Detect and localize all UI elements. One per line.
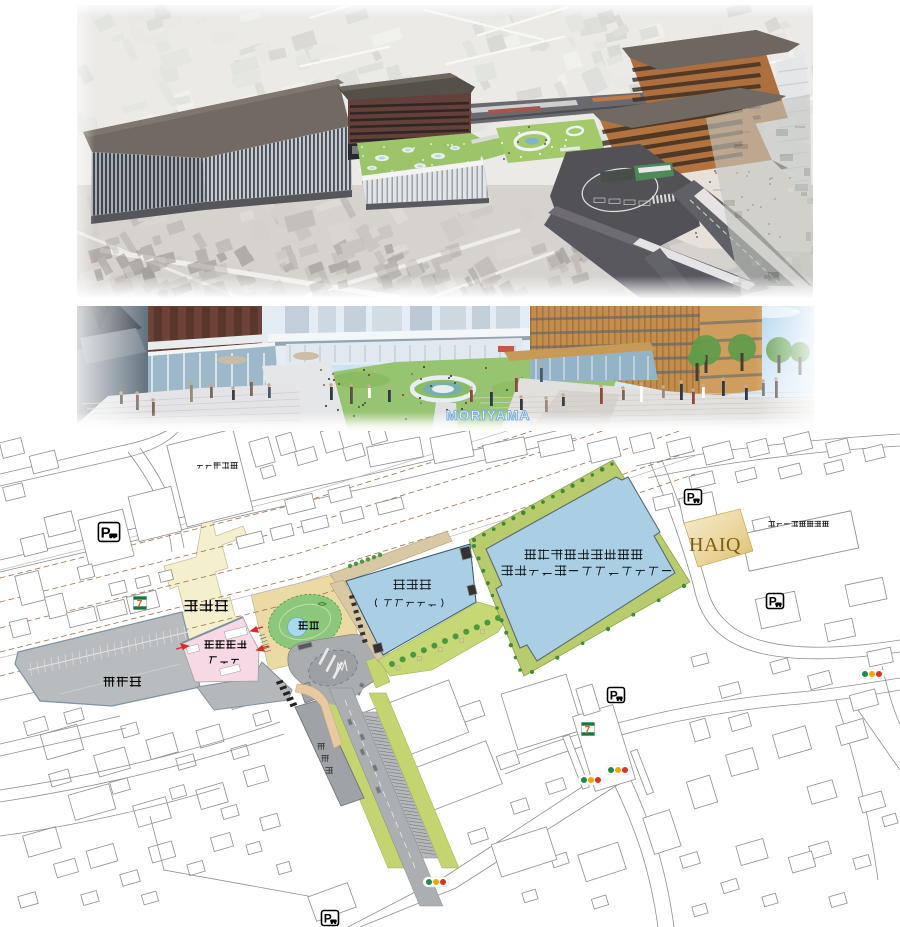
svg-text:P: P (324, 912, 332, 926)
svg-text:7: 7 (585, 725, 591, 736)
svg-text:P: P (101, 525, 111, 542)
svg-text:P: P (610, 689, 618, 703)
svg-text:P: P (687, 491, 695, 505)
svg-text:MORIYAMA: MORIYAMA (446, 407, 531, 423)
svg-text:7: 7 (137, 599, 143, 610)
svg-text:HAIQ: HAIQ (689, 534, 741, 556)
svg-text:P: P (769, 595, 777, 609)
